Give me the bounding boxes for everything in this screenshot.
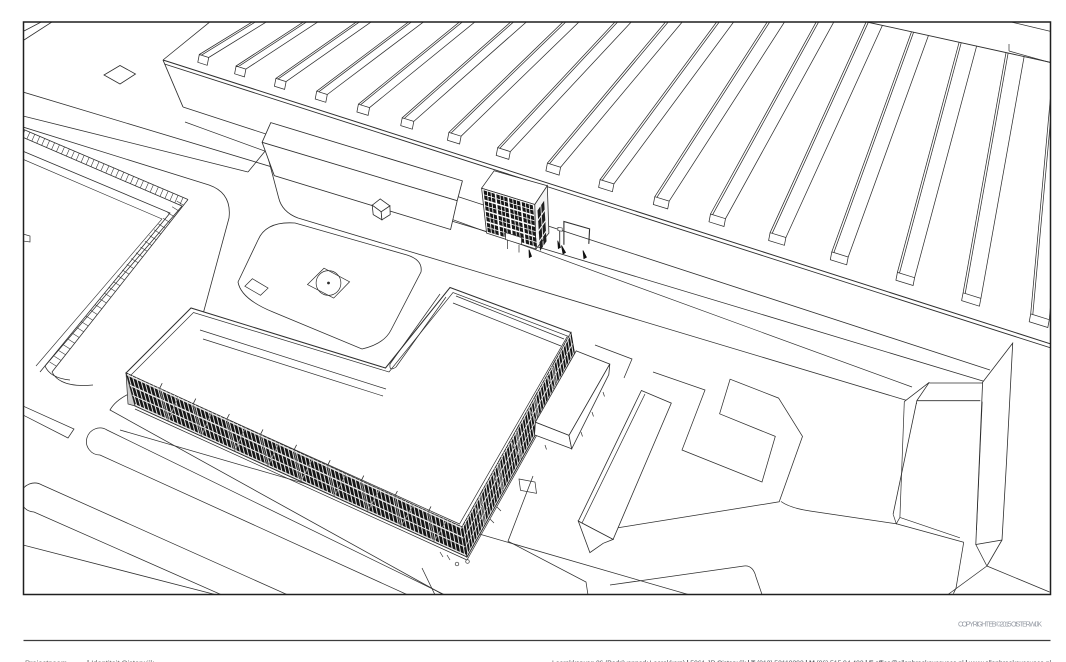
svg-text:COPYRIGHT EB ©2015 OISTERWIJK: COPYRIGHT EB ©2015 OISTERWIJK bbox=[958, 621, 1042, 629]
svg-text:Projectnaam: Projectnaam bbox=[25, 659, 67, 662]
svg-text:| Identiteit Oisterwijk: | Identiteit Oisterwijk bbox=[87, 659, 154, 662]
